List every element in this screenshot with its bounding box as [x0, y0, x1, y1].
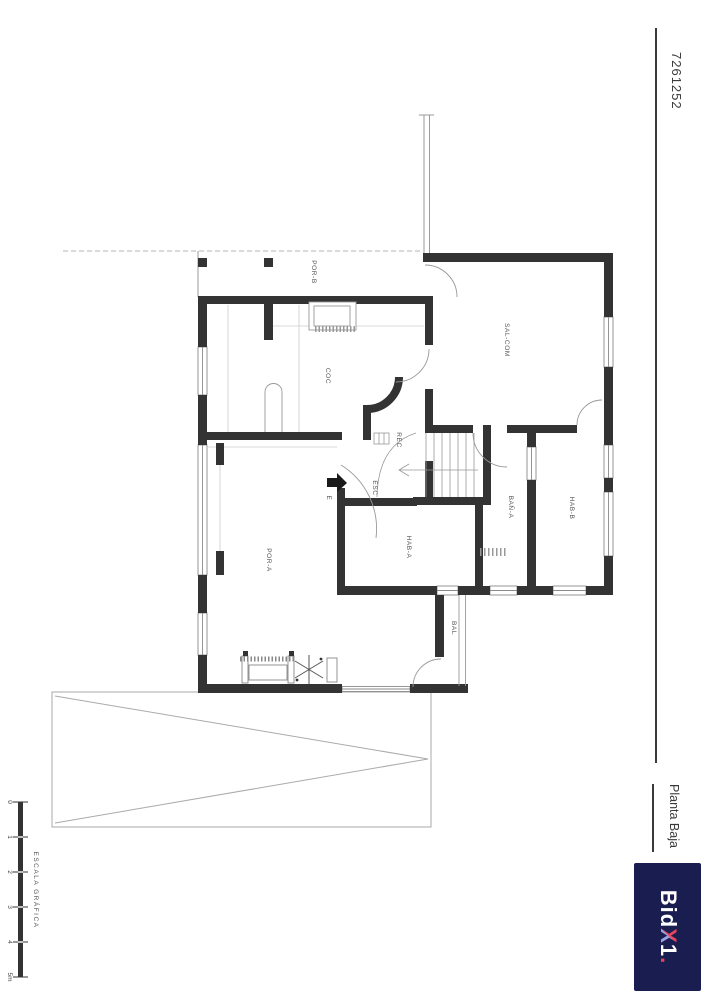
bidx1-logo-text: BidX1.: [655, 890, 681, 965]
room-label-bal: BAL: [450, 621, 457, 635]
logo-part-dot: .: [656, 957, 681, 964]
bidx1-logo: BidX1.: [634, 863, 701, 991]
room-label-hab-b: HAB-B: [568, 497, 575, 520]
logo-part-x: X: [656, 928, 681, 944]
room-label-esc: ESC: [371, 480, 378, 495]
scale-tick-3: 3: [6, 905, 13, 909]
room-label-ban-a: BAÑ-A: [507, 496, 516, 519]
kitchen-counter: [309, 302, 357, 330]
room-label-por-a: POR-A: [265, 548, 272, 572]
room-label-rec: REC: [395, 432, 402, 448]
scale-tick-1: 1: [6, 835, 13, 839]
planter-fixture: [327, 658, 337, 682]
scale-tick-5m: 5m: [6, 972, 13, 981]
balcony-railing: [459, 595, 466, 686]
logo-part-one: 1: [656, 944, 681, 957]
scale-tick-0: 0: [6, 800, 13, 804]
barbecue-fixture: [240, 651, 296, 683]
door-swings: [341, 265, 602, 687]
kitchen-column: [265, 384, 282, 432]
scale-tick-2: 2: [6, 870, 13, 874]
curved-wall: [367, 377, 399, 409]
scale-caption: ESCALA GRÁFICA: [32, 852, 41, 929]
title-block-rule: [655, 28, 657, 763]
walls: [198, 253, 613, 693]
site-boundary-lines: [63, 115, 434, 297]
floor-plan-drawing: POR-B COC SAL-COM REC ESC BAÑ-A HAB-A HA…: [0, 0, 707, 1000]
plan-title: Planta Baja: [667, 784, 681, 848]
plan-title-underline: [652, 784, 654, 852]
fan-symbol: [295, 655, 323, 684]
graphic-scale-bar: 0 1 2 3 4 5m ESCALA GRÁFICA: [6, 800, 41, 981]
drawing-number: 7261252: [669, 52, 684, 110]
room-label-por-b: POR-B: [310, 260, 317, 284]
logo-part-bid: Bid: [656, 890, 681, 928]
room-label-sal-com: SAL-COM: [503, 323, 510, 357]
interior-guide-lines: [208, 305, 424, 551]
room-label-hab-a: HAB-A: [405, 536, 412, 559]
driveway-ramp: [52, 692, 431, 827]
scale-tick-4: 4: [6, 940, 13, 944]
hall-radiator: [374, 433, 389, 444]
entrance-label: E: [325, 496, 332, 501]
room-label-coc: COC: [324, 368, 331, 384]
